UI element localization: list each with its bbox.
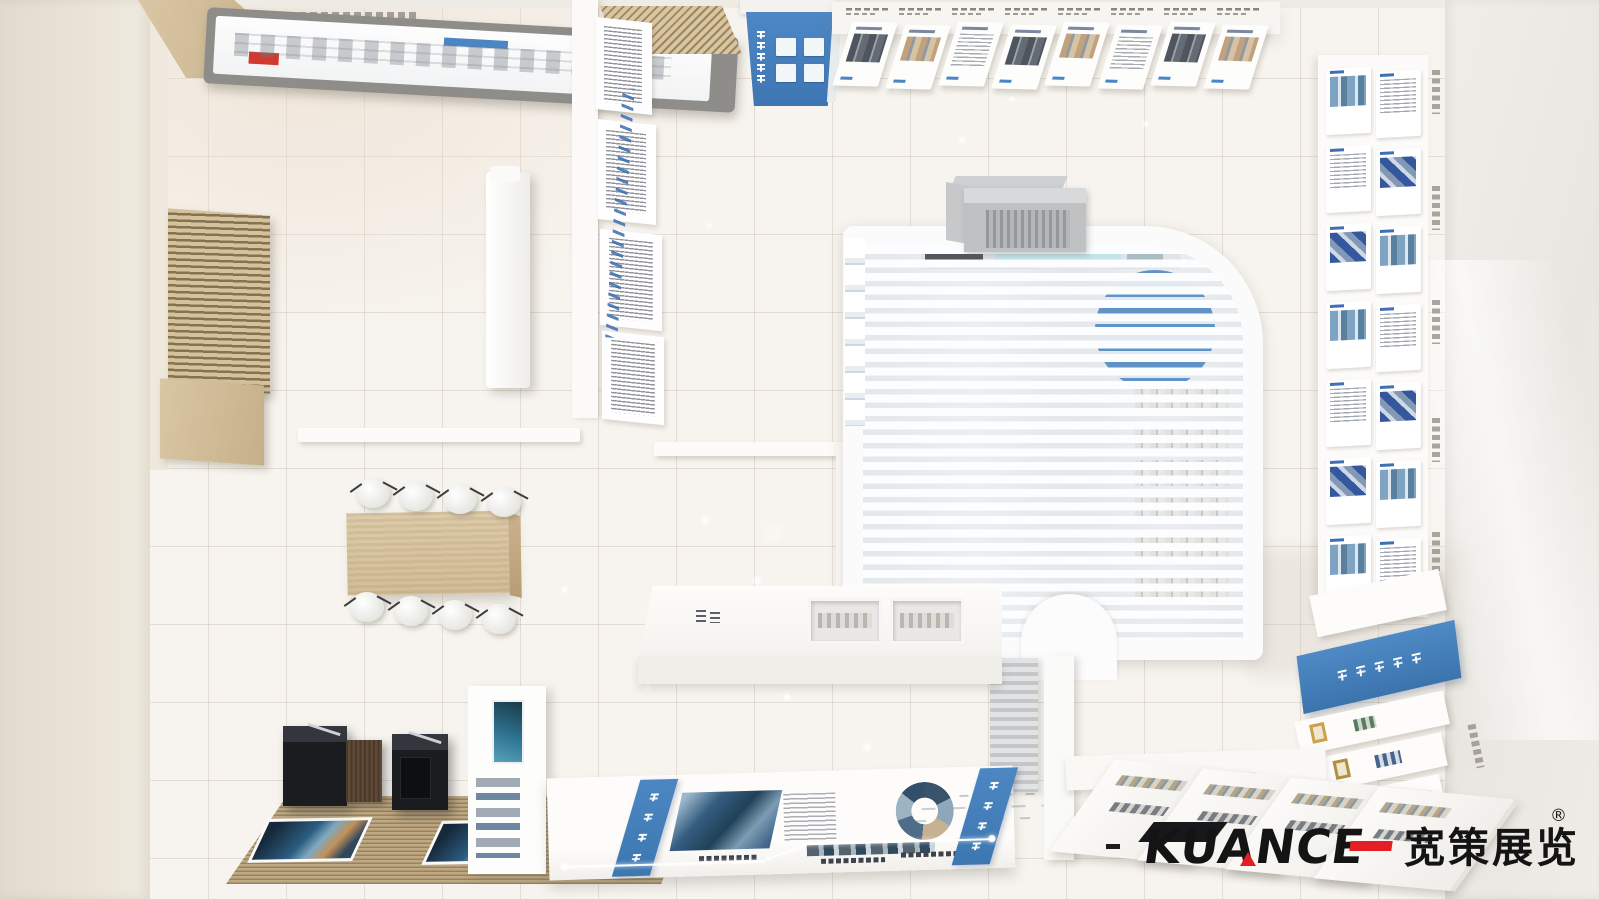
right-wall-vertical-label: [1432, 418, 1440, 462]
sign-ceiling-cap: [740, 0, 836, 14]
mini-poster: [1376, 304, 1421, 372]
mini-poster: [1376, 460, 1421, 528]
light-sparkle: [752, 575, 763, 586]
sign-glyph: [757, 75, 765, 83]
wall-screen: [492, 700, 524, 764]
circuit-line: [488, 692, 490, 722]
counter-front-face: [638, 656, 1002, 684]
mini-poster: [1376, 70, 1421, 138]
sign-glyph: [1411, 652, 1421, 664]
left-perimeter-wall: [0, 0, 150, 899]
light-sparkle: [782, 692, 792, 702]
recessed-vitrine: [890, 598, 964, 644]
white-chair: [399, 481, 433, 511]
panel-text-block: [783, 792, 836, 841]
shelf-items: [1374, 750, 1402, 768]
logo-chinese-name: 宽策展览: [1404, 828, 1580, 869]
counter-surface-text: [696, 610, 722, 624]
poster-title-text: [1217, 8, 1259, 16]
poster-row: [1326, 380, 1424, 450]
white-chair: [356, 478, 390, 508]
light-sparkle: [560, 585, 569, 594]
blue-divider-band: [612, 779, 678, 877]
meeting-table: [346, 511, 509, 596]
mini-poster: [1376, 382, 1421, 450]
poster-row: [1326, 146, 1424, 216]
blue-hanging-sign: [746, 12, 834, 106]
sign-glyph: [643, 814, 653, 822]
exhibition-hall-render: KUANCE 宽策展览 ®: [0, 0, 1599, 899]
sign-glyph: [1337, 670, 1347, 682]
right-wall-vertical-label: [1432, 300, 1440, 344]
white-chair: [482, 604, 516, 634]
white-chair: [438, 600, 472, 630]
sign-glyph: [757, 42, 765, 50]
wood-slat-screen: [168, 208, 270, 393]
light-sparkle: [700, 515, 711, 526]
poster-title-text: [1005, 8, 1047, 16]
wood-panel: [160, 378, 264, 465]
cabinet-top-face: [964, 188, 1086, 203]
white-chair: [394, 596, 428, 626]
light-sparkle: [706, 222, 713, 229]
photo-column: [476, 778, 520, 858]
sign-glyph: [983, 802, 993, 810]
partition-wall-left: [298, 428, 580, 442]
room-left-poster-strip: [845, 238, 865, 426]
circuit-line: [565, 860, 765, 868]
mini-poster: [1376, 148, 1421, 216]
poster-title-text: [952, 8, 994, 16]
sign-glyph: [1374, 661, 1384, 673]
light-sparkle: [760, 520, 786, 546]
poster-row: [1326, 68, 1424, 138]
circuit-line: [488, 692, 528, 694]
panel-caption: [821, 857, 885, 864]
right-perimeter-wall: [1445, 0, 1599, 899]
sign-glyph: [757, 53, 765, 61]
registered-trademark: ®: [1550, 806, 1567, 826]
floor-embedded-screen: [247, 817, 373, 863]
poster-row: [1326, 302, 1424, 372]
poster-title-text: [1164, 8, 1206, 16]
room-interior: [863, 246, 1243, 640]
vitrine-items: [900, 613, 954, 628]
circuit-dot: [561, 863, 568, 870]
band-text-glyphs: [970, 779, 1000, 854]
sign-glyph: [989, 782, 999, 790]
framed-item: [1332, 758, 1351, 780]
spine-wall: [572, 0, 598, 418]
recessed-vitrine: [808, 598, 882, 644]
poster-title-text: [1058, 8, 1100, 16]
white-chair: [443, 484, 477, 514]
mini-poster: [1326, 457, 1371, 525]
sign-glyph: [637, 834, 647, 842]
logo-dash: [1106, 844, 1120, 849]
poster-title-text: [1111, 8, 1153, 16]
gray-equipment-cabinet: [964, 188, 1086, 252]
banner-text-glyphs: [1337, 652, 1421, 681]
louvered-slat-roof: [863, 246, 1243, 640]
cabinet-louver-slot: [986, 210, 1070, 248]
light-sparkle: [958, 136, 966, 144]
mini-poster: [1326, 223, 1371, 291]
framed-item: [1309, 722, 1328, 744]
mini-poster: [1326, 379, 1371, 447]
right-wall-vertical-label: [1432, 186, 1440, 230]
right-wall-vertical-label: [1432, 70, 1440, 114]
sign-glyph: [649, 793, 659, 801]
poster-title-text: [899, 8, 941, 16]
bottom-display-counter: [547, 766, 1016, 881]
white-display-column: [486, 172, 530, 388]
black-kiosk: [392, 734, 448, 810]
sign-glyph: [977, 822, 987, 830]
sign-glyph: [1393, 657, 1403, 669]
kuance-logo: KUANCE 宽策展览 ®: [1098, 778, 1598, 888]
dark-wood-panel: [346, 740, 382, 802]
mini-poster: [1326, 67, 1371, 135]
light-sparkle: [1142, 120, 1150, 128]
white-chair: [350, 592, 384, 622]
vitrine-items: [818, 613, 872, 628]
circuit-line: [526, 692, 528, 772]
white-chair: [487, 487, 521, 517]
panel-photo: [670, 790, 783, 851]
circuit-line: [766, 845, 804, 860]
poster-row: [1326, 224, 1424, 294]
kiosk-open-shelf: [400, 757, 431, 799]
mini-poster: [1326, 145, 1371, 213]
partition-wall-center: [654, 442, 850, 456]
logo-red-triangle: [1240, 852, 1256, 866]
shelf-items: [1353, 715, 1377, 731]
sign-vertical-text: [754, 28, 768, 86]
light-sparkle: [862, 742, 872, 752]
sign-glyph: [757, 64, 765, 72]
sign-glyph: [631, 854, 641, 862]
sign-glyph: [757, 31, 765, 39]
logo-red-bar: [1349, 841, 1392, 851]
poster-row: [1326, 458, 1424, 528]
sign-glyph: [971, 842, 981, 850]
sign-square-grid: [776, 38, 824, 82]
display-counter: [638, 586, 1002, 660]
light-sparkle: [643, 683, 652, 692]
band-text-glyphs: [630, 790, 660, 865]
mini-poster: [1326, 301, 1371, 369]
corner-display-wall: [468, 686, 546, 874]
timeline-text-panel: [602, 331, 664, 426]
sign-glyph: [1355, 665, 1365, 677]
mini-poster: [1376, 226, 1421, 294]
black-kiosk: [283, 726, 347, 806]
light-sparkle: [1008, 95, 1016, 103]
poster-title-text: [846, 8, 888, 16]
